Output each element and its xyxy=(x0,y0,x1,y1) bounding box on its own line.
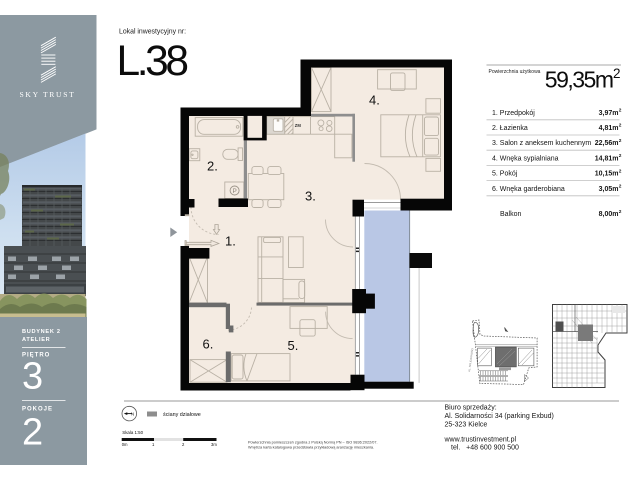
svg-text:2: 2 xyxy=(613,66,621,81)
svg-text:2: 2 xyxy=(619,184,622,190)
svg-text:Biuro sprzedaży:: Biuro sprzedaży: xyxy=(445,405,497,412)
svg-text:www.trustinvestment.pl: www.trustinvestment.pl xyxy=(444,436,517,443)
svg-text:4.: 4. xyxy=(369,93,380,108)
svg-text:2: 2 xyxy=(619,168,622,174)
svg-text:14,81m: 14,81m xyxy=(595,155,619,162)
svg-text:ściany działowe: ściany działowe xyxy=(163,412,201,418)
svg-text:Balkon: Balkon xyxy=(500,211,522,218)
svg-text:2: 2 xyxy=(22,412,43,454)
svg-text:5.: 5. xyxy=(288,338,299,353)
svg-text:4,81m: 4,81m xyxy=(599,125,619,132)
svg-text:3. Salon z aneksem kuchennym: 3. Salon z aneksem kuchennym xyxy=(492,140,591,147)
svg-text:Al. Solidarności 34 (parking E: Al. Solidarności 34 (parking Exbud) xyxy=(445,413,554,420)
svg-text:4. Wnęka sypialniana: 4. Wnęka sypialniana xyxy=(492,155,559,162)
svg-text:ZM: ZM xyxy=(295,123,302,128)
svg-text:L.38: L.38 xyxy=(117,38,188,85)
svg-text:59,35m: 59,35m xyxy=(545,67,613,93)
svg-text:1. Przedpokój: 1. Przedpokój xyxy=(492,110,535,117)
svg-text:3.: 3. xyxy=(305,189,316,204)
svg-text:Lokal inwestycyjny nr:: Lokal inwestycyjny nr: xyxy=(119,29,186,36)
svg-text:3,05m: 3,05m xyxy=(599,186,619,193)
svg-text:AL. SOLIDARNOŚCI: AL. SOLIDARNOŚCI xyxy=(466,347,474,372)
svg-text:25-323 Kielce: 25-323 Kielce xyxy=(445,421,488,428)
svg-text:Powierzchnia pomieszczeń zgodn: Powierzchnia pomieszczeń zgodna z Polską… xyxy=(248,441,378,445)
svg-text:3: 3 xyxy=(22,356,43,398)
svg-text:2. Łazienka: 2. Łazienka xyxy=(492,125,528,132)
svg-text:6.: 6. xyxy=(203,337,214,352)
svg-text:2: 2 xyxy=(619,108,622,114)
svg-text:6. Wnęka garderobiana: 6. Wnęka garderobiana xyxy=(492,186,565,193)
svg-text:tel. +48 600 900 500: tel. +48 600 900 500 xyxy=(451,445,519,452)
svg-text:8,00m: 8,00m xyxy=(599,211,619,218)
svg-text:2: 2 xyxy=(182,442,185,447)
svg-text:0m: 0m xyxy=(122,442,128,447)
svg-text:2: 2 xyxy=(619,138,622,144)
svg-text:P: P xyxy=(232,188,236,195)
svg-text:Powierzchnia użytkowa: Powierzchnia użytkowa xyxy=(489,69,541,75)
svg-text:2.: 2. xyxy=(207,159,218,174)
svg-text:2: 2 xyxy=(619,123,622,129)
svg-text:1.: 1. xyxy=(225,234,236,249)
svg-text:5. Pokój: 5. Pokój xyxy=(492,171,518,178)
svg-text:22,56m: 22,56m xyxy=(595,140,619,147)
svg-text:3,97m: 3,97m xyxy=(599,110,619,117)
svg-text:Skala 1:50: Skala 1:50 xyxy=(122,430,143,435)
svg-text:BUDYNEK 2: BUDYNEK 2 xyxy=(22,329,61,335)
svg-text:2: 2 xyxy=(619,209,622,215)
svg-text:ATELIER: ATELIER xyxy=(22,337,50,343)
svg-text:1: 1 xyxy=(152,442,155,447)
svg-text:3m: 3m xyxy=(211,442,217,447)
svg-text:2: 2 xyxy=(619,153,622,159)
svg-text:N: N xyxy=(131,411,134,416)
svg-text:Wnętrza karta katalogowa przed: Wnętrza karta katalogowa przedstawia prz… xyxy=(248,446,374,450)
svg-text:10,15m: 10,15m xyxy=(595,171,619,178)
svg-text:SKY TRUST: SKY TRUST xyxy=(19,90,75,99)
